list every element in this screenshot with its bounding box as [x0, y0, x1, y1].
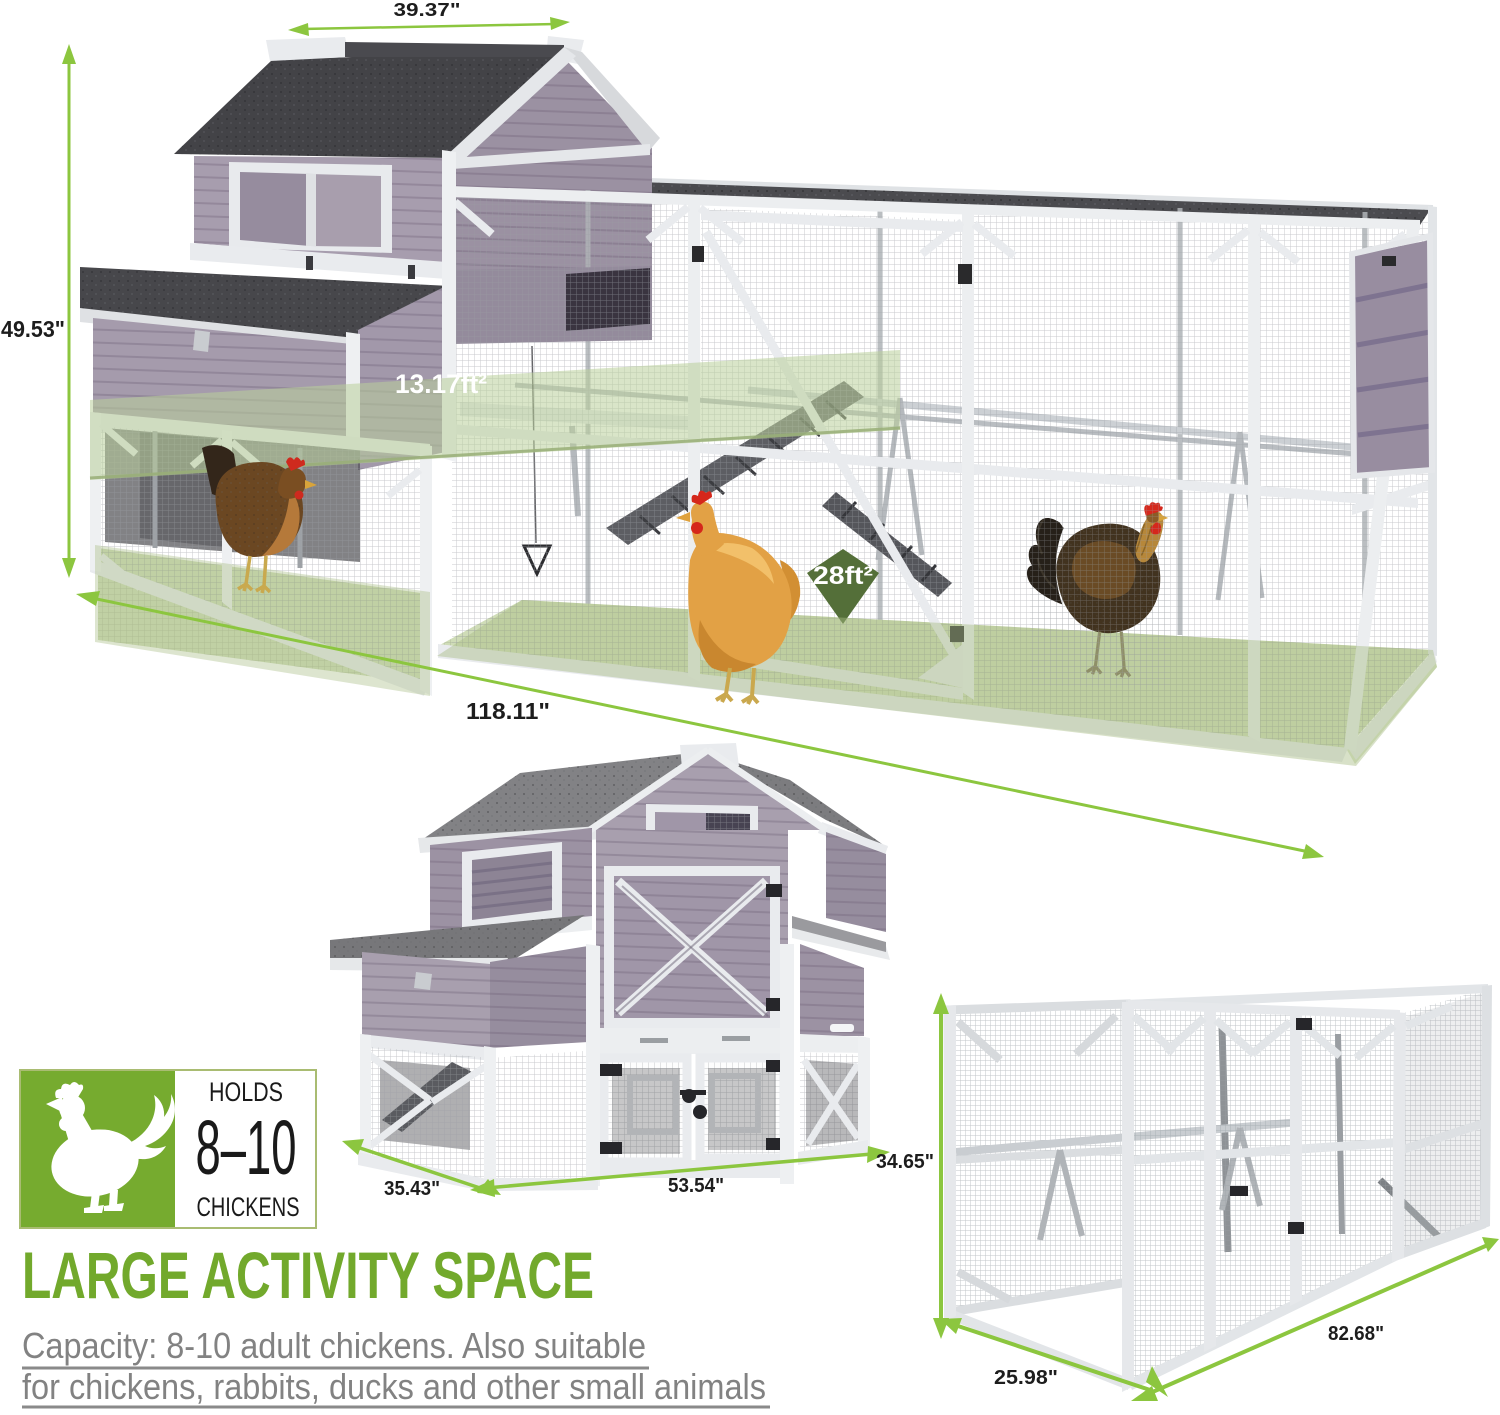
svg-text:39.37": 39.37"	[394, 0, 461, 20]
svg-text:25.98": 25.98"	[994, 1367, 1058, 1389]
svg-text:LARGE ACTIVITY SPACE: LARGE ACTIVITY SPACE	[22, 1238, 594, 1312]
svg-text:for chickens, rabbits, ducks a: for chickens, rabbits, ducks and other s…	[22, 1366, 766, 1407]
svg-text:Capacity: 8-10 adult chickens.: Capacity: 8-10 adult chickens. Also suit…	[22, 1325, 646, 1366]
svg-text:8–10: 8–10	[196, 1105, 297, 1191]
svg-text:34.65": 34.65"	[876, 1151, 934, 1173]
svg-text:35.43": 35.43"	[384, 1178, 440, 1200]
svg-text:28ft²: 28ft²	[813, 562, 873, 590]
svg-text:82.68": 82.68"	[1328, 1323, 1384, 1345]
svg-text:HOLDS: HOLDS	[209, 1077, 283, 1107]
svg-text:118.11": 118.11"	[466, 698, 550, 724]
svg-text:49.53": 49.53"	[1, 316, 65, 342]
svg-text:13.17ft²: 13.17ft²	[395, 369, 487, 399]
svg-text:53.54": 53.54"	[668, 1175, 724, 1197]
svg-text:CHICKENS: CHICKENS	[197, 1192, 300, 1222]
